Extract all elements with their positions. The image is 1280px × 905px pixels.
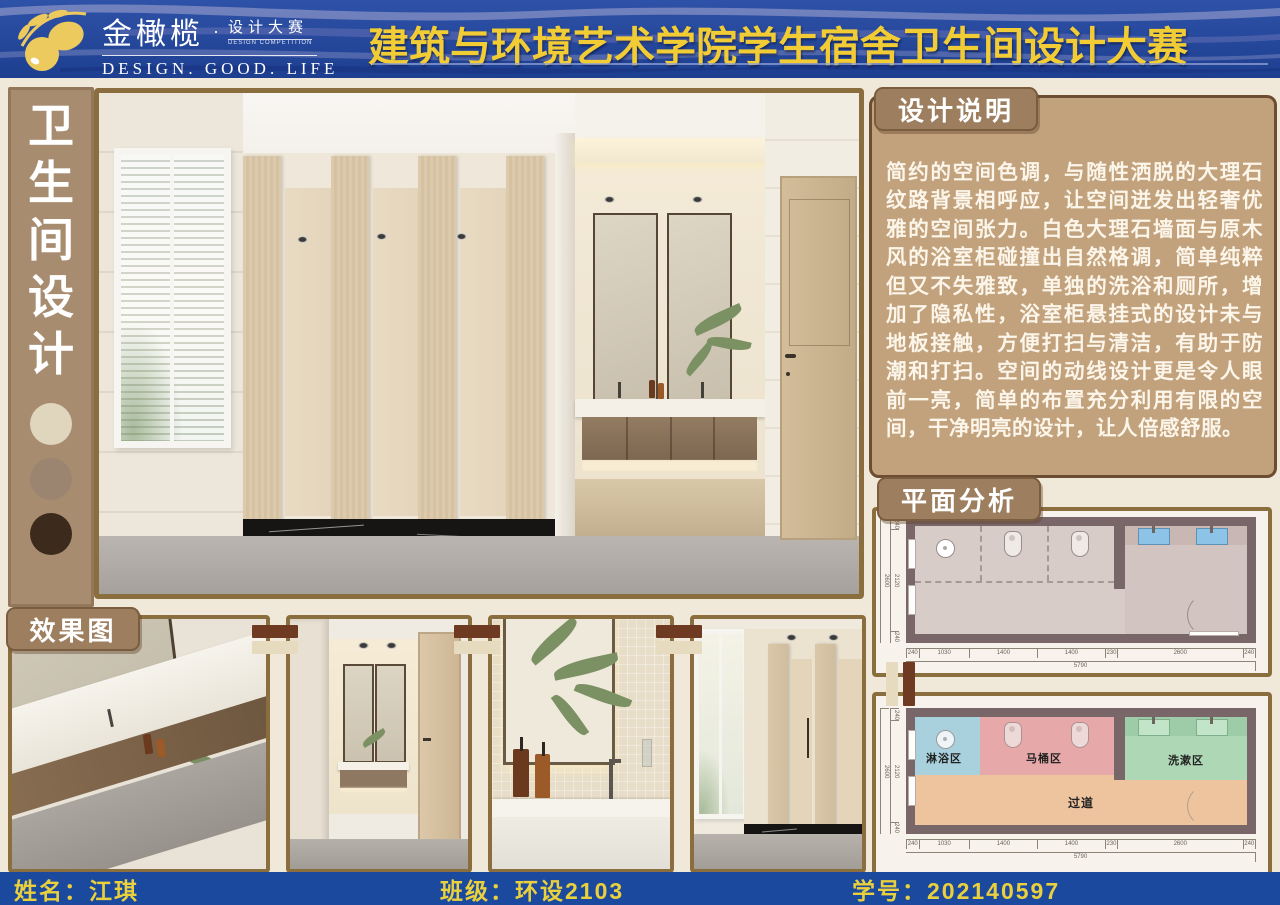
zone-label-shower: 淋浴区: [926, 750, 962, 766]
shower-drain-icon: [936, 539, 955, 558]
design-notes-panel: 简约的空间色调，与随性洒脱的大理石纹路背景相呼应，让空间迸发出轻奢优雅的空间张力…: [869, 95, 1277, 478]
brand-tagline: DESIGN. GOOD. LIFE: [102, 59, 338, 78]
plan-connector-bar: [903, 662, 915, 706]
render-connector-bar: [454, 641, 500, 654]
palette-dot-mid: [30, 458, 72, 500]
brand-divider: [102, 55, 317, 56]
cove-light: [575, 138, 765, 163]
faucet-icon: [609, 759, 613, 799]
brand-subtitle: 设计大赛: [228, 19, 308, 36]
palette-dot-light: [30, 403, 72, 445]
plan-window: [908, 539, 916, 569]
toilet-icon: [1071, 531, 1089, 557]
zone-label-wash: 洗漱区: [1168, 752, 1204, 768]
door-lock-icon: [786, 372, 790, 376]
vanity-counter: [575, 399, 765, 417]
mirror: [593, 213, 658, 402]
id-label: 学号：: [852, 878, 927, 904]
window: [694, 629, 748, 819]
stall-door: [791, 659, 811, 824]
footer-name-field: 姓名：江琪: [14, 872, 139, 905]
render-thumb-corridor: [286, 615, 472, 873]
divider-wall: [555, 133, 575, 536]
floor: [290, 839, 468, 869]
class-label: 班级：: [440, 878, 515, 904]
shower-drain-icon: [936, 730, 955, 749]
brand-subtitle-en: DESIGN COMPETITION: [228, 39, 312, 46]
top-banner: 金橄榄 · 设计大赛 DESIGN COMPETITION DESIGN. GO…: [0, 0, 1280, 78]
dim-row: 240 1030 1400 1400 230 2600 240: [906, 648, 1256, 658]
plan-analysis-heading: 平面分析: [877, 477, 1041, 521]
render-connector-bar: [454, 625, 500, 638]
sink-icon: [1196, 719, 1228, 736]
door-handle-slot: [807, 718, 809, 758]
render-thumb-vanity-closeup: [8, 615, 270, 873]
strip-char: 间: [11, 212, 91, 269]
id-value: 202140597: [927, 878, 1060, 904]
plan-connector-bar: [886, 662, 898, 706]
plan-canvas: 淋浴区 马桶区 洗漱区 过道: [906, 708, 1256, 834]
zone-toilet: [980, 717, 1114, 775]
alcove-floor: [575, 479, 765, 537]
spotlight-icon: [358, 642, 369, 649]
partition-pillar: [768, 644, 788, 829]
toilet-icon: [1071, 722, 1089, 748]
dim-col-total: 2600: [880, 517, 889, 643]
faucet-spout-icon: [609, 759, 621, 763]
partition-pillar: [331, 156, 369, 534]
window-greenery: [699, 749, 730, 814]
toilet-icon: [1004, 531, 1022, 557]
bottle-pump-icon: [520, 737, 523, 751]
zone-label-corridor: 过道: [1068, 794, 1094, 811]
main-render-scene: [99, 93, 859, 594]
competition-poster: 金橄榄 · 设计大赛 DESIGN COMPETITION DESIGN. GO…: [0, 0, 1280, 905]
floor: [694, 834, 862, 869]
brand-block: 金橄榄 · 设计大赛 DESIGN COMPETITION DESIGN. GO…: [102, 9, 338, 78]
vanity-counter: [338, 762, 409, 771]
bottle-pump-icon: [542, 742, 545, 756]
render-connector-bar: [252, 641, 298, 654]
brand-separator: ·: [213, 21, 219, 42]
floor-plan-technical: 240 1030 1400 1400 230 2600 240 5790 240…: [872, 507, 1272, 677]
partition-pillar: [815, 644, 835, 829]
footer-class-field: 班级：环设2103: [440, 872, 624, 905]
partition-pillar: [506, 156, 544, 534]
mirror: [375, 664, 406, 763]
dim-row: 240 1030 1400 1400 230 2600 240: [906, 839, 1256, 849]
wood-door: [418, 632, 461, 854]
render-thumb-counter-closeup: [488, 615, 674, 873]
floor-plan-zones: 淋浴区 马桶区 洗漱区 过道 240 1030 1400 1400 230 26…: [872, 692, 1272, 876]
sink-icon: [1138, 719, 1170, 736]
dim-total-row: 5790: [906, 852, 1256, 862]
wood-door: [780, 176, 857, 541]
plan-window: [908, 730, 916, 760]
name-value: 江琪: [89, 878, 139, 904]
partition-pillar: [418, 156, 456, 534]
renders-heading: 效果图: [6, 607, 140, 651]
soap-bottle-icon: [658, 383, 664, 399]
plan-canvas: [906, 517, 1256, 643]
vanity-cabinet: [582, 417, 757, 460]
sink-icon: [1138, 528, 1170, 545]
name-label: 姓名：: [14, 878, 89, 904]
window-mullion: [719, 634, 722, 814]
strip-char: 计: [11, 326, 91, 383]
stall-door: [838, 659, 862, 824]
door-handle-icon: [423, 738, 431, 741]
class-value: 环设2103: [515, 878, 624, 904]
vase-icon: [642, 739, 652, 767]
window-mullion: [170, 155, 174, 441]
main-render-image: [94, 88, 864, 599]
dim-total-row: 5790: [906, 661, 1256, 671]
strip-char: 卫: [11, 98, 91, 155]
soap-bottle-icon: [535, 754, 550, 798]
vertical-title-strip: 卫 生 间 设 计: [8, 87, 94, 607]
faucet-icon: [701, 382, 704, 398]
door-handle-icon: [785, 354, 796, 358]
door-swing-icon: [1187, 594, 1229, 636]
window: [114, 148, 231, 448]
mirror: [667, 213, 732, 402]
spotlight-icon: [386, 642, 397, 649]
render-connector-bar: [656, 625, 702, 638]
partition-pillar: [243, 156, 281, 534]
brand-name: 金橄榄: [102, 9, 204, 53]
toilet-icon: [1004, 722, 1022, 748]
palette-dot-dark: [30, 513, 72, 555]
soap-bottle-icon: [649, 380, 655, 398]
vanity-cabinet: [340, 770, 408, 788]
title-underline: [372, 63, 1268, 65]
zone-label-toilet: 马桶区: [1026, 750, 1062, 766]
plan-door-leaf: [1189, 631, 1239, 636]
door-swing-icon: [1187, 785, 1229, 827]
dim-col: 240 2120 240: [890, 708, 899, 834]
faucet-icon: [618, 382, 621, 398]
strip-char: 生: [11, 155, 91, 212]
spotlight-icon: [692, 196, 703, 203]
dim-col-total: 2600: [880, 708, 889, 834]
spotlight-icon: [297, 236, 308, 243]
olive-logo-icon: [8, 2, 100, 76]
under-cabinet-glow: [582, 461, 757, 471]
footer-bar: 姓名：江琪 班级：环设2103 学号：202140597: [0, 872, 1280, 905]
soap-bottle-icon: [513, 749, 529, 797]
render-connector-bar: [252, 625, 298, 638]
gray-marble-floor: [99, 536, 859, 594]
strip-char: 设: [11, 269, 91, 326]
design-notes-heading: 设计说明: [874, 87, 1038, 131]
dim-col: 240 2120 240: [890, 517, 899, 643]
sink-icon: [1196, 528, 1228, 545]
counter-top: [492, 799, 670, 817]
plan-window: [908, 585, 916, 615]
under-cabinet-glow: [340, 788, 408, 792]
render-thumb-stalls: [690, 615, 866, 873]
footer-id-field: 学号：202140597: [852, 872, 1060, 905]
render-connector-bar: [656, 641, 702, 654]
plan-window: [908, 776, 916, 806]
spotlight-icon: [604, 196, 615, 203]
mirror: [343, 664, 374, 763]
design-notes-body: 简约的空间色调，与随性洒脱的大理石纹路背景相呼应，让空间迸发出轻奢优雅的空间张力…: [886, 159, 1263, 444]
counter-front: [492, 817, 670, 870]
